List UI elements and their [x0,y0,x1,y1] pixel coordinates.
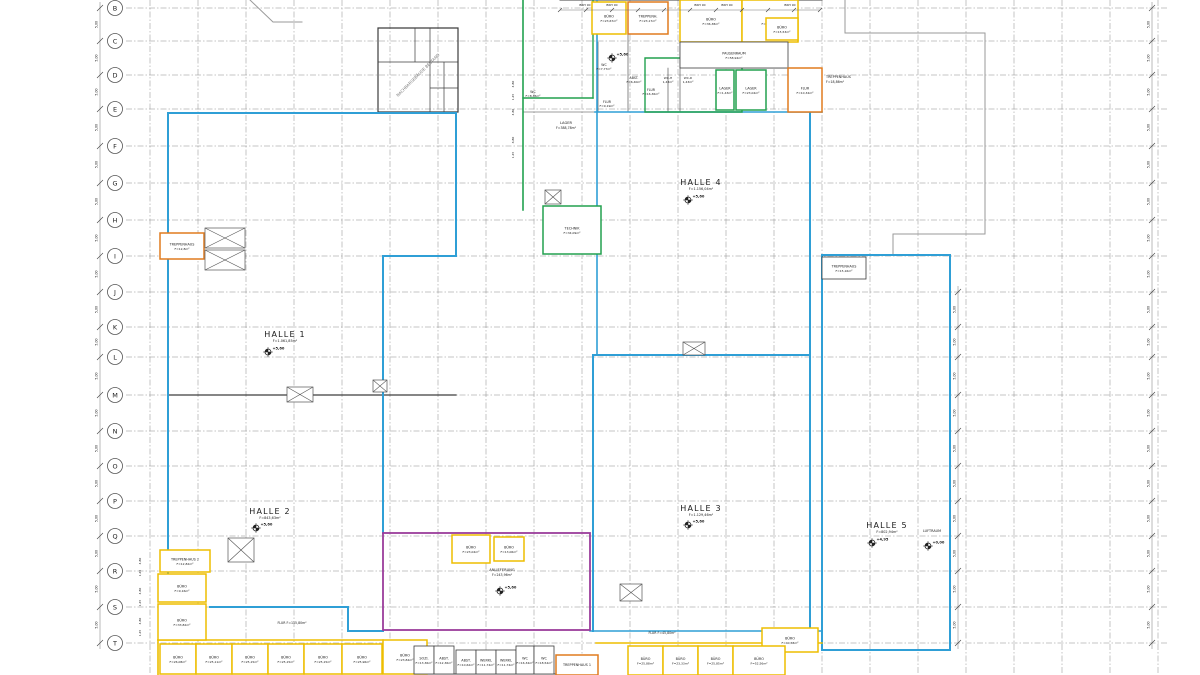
room-area: F=36,38m² [703,22,721,26]
row-letter: D [112,71,117,79]
dim-value: 5,00 [1147,585,1151,592]
dim-value: 5,00 [1147,445,1151,452]
plan-label: 1,43m² [683,80,695,84]
hall-name: HALLE 1 [264,330,306,339]
dimension-chain: 5,005,005,005,005,005,005,005,005,005,00 [953,286,962,649]
room-b-ro: BÜROF=25,15m² [268,644,304,674]
room-area: F=10,34m² [797,91,815,95]
room-area: F=40,58m² [782,641,800,645]
row-letter: F [113,142,117,150]
room-treppenhaus: TREPPENHAUSF=12,8m² [160,233,204,259]
room-area: F=23,04m² [743,91,761,95]
room-area: F=25,88m² [637,661,655,665]
plan-label: 1,45 [138,570,142,577]
grid-row-J: J [108,285,123,300]
grid-row-Q: Q [108,529,123,544]
row-letter: R [113,567,118,575]
plan-label: BRH 90 [579,3,590,7]
dim-value: 5,00 [95,54,99,61]
plan-label: F=8,35m² [525,94,541,98]
room-werkl: WERKLF=11,74m² [496,650,516,674]
row-letter: L [113,353,117,361]
elevation-quadrant [925,543,928,546]
dim-value: 5,00 [953,306,957,313]
row-letter: T [112,639,117,647]
room-wc: WCF=16,34m² [516,646,534,674]
room-b-ro: BÜROF=23,33m² [663,646,698,675]
dim-value: 5,00 [1147,372,1151,379]
plan-label: TREPPENHAUS [825,75,851,79]
plan-label: 1,45 [138,630,142,637]
stair-symbol [545,190,561,204]
room-b-ro: BÜROF=15,53m² [766,18,798,40]
room-abst-: ABST.F=10,62m² [456,650,476,674]
grid-row-O: O [108,459,123,474]
room-area: F=10,62m² [458,663,476,667]
room-area: F=12,36m² [436,661,454,665]
hall-halle-1: HALLE 1F=1.061,85m²+5,60 [263,330,306,357]
row-letter: J [113,288,116,296]
grid-row-T: T [108,636,123,651]
room-name: BÜRO [177,584,187,589]
dim-value: 5,00 [95,515,99,522]
grid-row-N: N [108,424,123,439]
grid-row-H: H [108,213,123,228]
grid-row-labels: BCDEFGHIJKLMNOPQRST [108,1,123,651]
room-b-ro: BÜROF=25,15m² [232,644,268,674]
hall-name: HALLE 2 [249,507,291,516]
dim-value: 5,00 [1147,306,1151,313]
room-name: BÜRO [754,656,764,661]
dim-value: 5,00 [95,198,99,205]
elevation-quadrant [500,591,503,594]
room-area: F=25,85m² [707,661,725,665]
hall-halle-4: HALLE 4F=1.156,04m²+5,60 [680,178,722,205]
gray-outline [845,0,985,255]
plan-label: 1,45 [138,600,142,607]
elevation-value: +5,60 [693,520,705,524]
dim-value: 5,00 [953,338,957,345]
plan-label: 4,80 [138,558,142,565]
dim-value: 5,00 [1147,338,1151,345]
row-letter: S [113,603,117,611]
elevation-marker: +5,60 [607,53,629,64]
dim-value: 5,00 [953,409,957,416]
row-letter: P [113,497,117,505]
dim-value: 5,00 [1147,88,1151,95]
grid-row-I: I [108,249,123,264]
grid-row-R: R [108,564,123,579]
dim-value: 5,00 [95,372,99,379]
room-area: F=26,08m² [170,660,188,664]
grid-row-P: P [108,494,123,509]
stair-symbol [373,380,387,392]
room-b-ro: BÜROF=23,04m² [452,535,490,563]
dim-value: 5,00 [1147,409,1151,416]
hall-area: F=802,94m² [876,530,898,534]
dim-value: 5,00 [95,21,99,28]
room-area: F=18,54m² [536,661,554,665]
dim-value: 5,00 [1147,270,1151,277]
dim-value: 5,00 [1147,198,1151,205]
dim-value: 5,00 [1147,515,1151,522]
room-area: F=23,04m² [463,550,481,554]
plan-label: 4,80 [511,109,515,116]
dim-value: 5,00 [953,621,957,628]
dim-value: 5,00 [1147,124,1151,131]
plan-label: LAGER [560,121,573,125]
plan-label: 1,45 [511,94,515,101]
hall-name: HALLE 4 [680,178,722,187]
plan-label: F=18,86m² [826,80,845,84]
cad-floorplan-screenshot: BÜROF=23,67m²TREPPENH.F=23,17m²BÜROF=36,… [0,0,1200,675]
room-area: F=12,8m² [174,247,190,251]
grid-row-B: B [108,1,123,16]
elevation-value: +0,00 [933,541,945,545]
plan-label: F=16,36m² [643,92,661,96]
room-treppenhaus-2: TREPPENHAUS 2F=12,82m² [160,550,210,572]
elevation-quadrant [497,588,500,591]
elevation-value: +5,60 [505,586,517,590]
room-area: F=25,15m² [242,660,260,664]
dim-value: 5,00 [95,621,99,628]
elevation-quadrant [612,58,615,61]
room-b-ro: BÜROF=25,96m² [342,644,382,674]
grid-row-D: D [108,68,123,83]
room-area: F=15,53m² [774,30,792,34]
dim-value: 5,00 [953,515,957,522]
room-name: BÜRO [281,655,291,660]
stair-symbol [228,538,254,562]
room-name: BÜRO [400,653,410,658]
room-abst-: ABST.F=12,36m² [434,646,454,674]
dim-value: 5,00 [953,550,957,557]
blue-outline [210,607,383,631]
elevation-quadrant [256,528,259,531]
plan-label: 6,80 [511,137,515,144]
room-name: TREPPENHAUS 1 [562,663,591,667]
dim-value: 5,00 [1147,54,1151,61]
room-name: BÜRO [357,655,367,660]
dim-value: 5,00 [1147,21,1151,28]
room-area: F=58,94m² [726,56,744,60]
room-area: F=25,15m² [315,660,333,664]
grid-row-S: S [108,600,123,615]
room-werkl: WERKLF=11,74m² [476,650,496,674]
grid-row-K: K [108,320,123,335]
elevation-marker: +5,60 [683,520,705,531]
plan-label: LUFTRAUM [923,529,941,533]
stair-symbol [683,342,705,355]
dim-value: 5,00 [1147,161,1151,168]
plan-label: 1,45 [511,152,515,159]
room-b-ro: BÜROF=25,15m² [304,644,342,674]
room-area: F=11,74m² [478,663,496,667]
dimension-chain: 5,005,005,005,005,005,005,005,005,005,00… [95,2,104,649]
room-name: BÜRO [706,17,716,22]
room-name: BÜRO [177,618,187,623]
row-letter: O [112,462,117,470]
hall-halle-5: HALLE 5F=802,94m²+4,95 [866,521,908,548]
hall-area: F=843,63m² [259,516,281,520]
grid-row-G: G [108,176,123,191]
stair-symbol [205,250,245,270]
elevation-marker: +0,00 [923,541,945,552]
elevation-value: +4,95 [877,538,889,542]
elevation-quadrant [688,200,691,203]
dim-value: 5,00 [95,338,99,345]
elevation-quadrant [685,522,688,525]
room-area: F=23,17m² [640,19,658,23]
room-area: F=15,16m² [836,269,854,273]
room-name: BÜRO [504,545,514,550]
dim-value: 5,00 [95,445,99,452]
room-technik: TECHNIKF=34,09m² [543,206,601,254]
row-letter: G [112,179,117,187]
row-letter: C [113,37,118,45]
room-b-ro: BÜROF=52,56m² [733,646,785,675]
grid-row-L: L [108,350,123,365]
room-area: F=23,84m² [397,658,415,662]
room-lager: LAGERF=23,04m² [736,70,766,110]
plan-label: BRH 90 [784,3,795,7]
row-letter: Q [112,532,117,540]
plan-label: F=9,19m² [599,104,615,108]
room-name: BÜRO [641,656,651,661]
elevation-quadrant [268,352,271,355]
grid-row-E: E [108,102,123,117]
elevation-quadrant [265,349,268,352]
room-name: BÜRO [466,545,476,550]
elevation-marker: +5,60 [251,523,273,534]
dim-value: 5,00 [95,270,99,277]
room-treppenhaus-1: TREPPENHAUS 1 [556,655,598,675]
plan-label: F=6,40m² [626,80,642,84]
dim-value: 5,00 [953,585,957,592]
dim-value: 5,00 [95,306,99,313]
dim-value: 5,00 [953,372,957,379]
room-b-ro: BÜROF=33,82m² [158,604,206,640]
dim-value: 5,00 [953,480,957,487]
elevation-quadrant [685,197,688,200]
hall-area: F=1.061,85m² [273,339,298,343]
elevation-marker: +4,95 [867,538,889,549]
plan-label: BRH 90 [694,3,705,7]
plan-label: F=243,96m² [492,573,513,577]
room-area: F=12,82m² [177,562,195,566]
hall-name: HALLE 5 [866,521,908,530]
row-letter: E [113,105,117,113]
elevation-value: +5,60 [693,195,705,199]
dim-value: 5,00 [1147,234,1151,241]
room-name: BÜRO [245,655,255,660]
hall-halle-3: HALLE 3F=1.129,46m²+5,60 [680,504,722,530]
room-b-ro: BÜROF=25,85m² [698,646,733,675]
row-letter: B [113,4,117,12]
room-treppenhaus: TREPPENHAUSF=15,16m² [822,257,866,279]
room-area: F=52,56m² [751,661,769,665]
room-area: F=25,15m² [278,660,296,664]
room-flur: FLURF=10,34m² [788,68,822,112]
dim-value: 5,00 [953,445,957,452]
room-name: BÜRO [604,14,614,19]
elevation-quadrant [872,543,875,546]
room-b-ro: BÜROF=9,16m² [158,574,206,602]
dim-value: 5,00 [95,88,99,95]
dim-value: 5,00 [95,124,99,131]
elevation-value: +5,60 [261,523,273,527]
dim-value: 5,00 [95,161,99,168]
row-letter: M [112,391,118,399]
hall-area: F=1.156,04m² [689,187,714,191]
room-name: BÜRO [209,655,219,660]
hall-halle-2: HALLE 2F=843,63m²+5,60 [249,507,291,533]
elevation-value: +5,60 [273,347,285,351]
row-letter: N [113,427,118,435]
room-b-ro: BÜROF=26,08m² [160,644,196,674]
room-wc: WCF=18,54m² [534,646,554,674]
room-name: BÜRO [173,655,183,660]
dim-value: 5,00 [95,550,99,557]
room-area: F=13,06m² [501,550,519,554]
plan-label: FLUR F=45,80m² [648,631,676,635]
blue-outline [168,113,456,533]
stair-symbol [620,584,642,601]
hall-area: F=1.129,46m² [689,513,714,517]
dim-value: 5,00 [95,480,99,487]
dim-value: 5,00 [1147,550,1151,557]
room-area: F=13,36m² [416,661,434,665]
room-area: F=11,74m² [498,663,516,667]
dim-value: 5,00 [95,234,99,241]
grid-row-F: F [108,139,123,154]
plan-label: BRH 90 [721,3,732,7]
stair-symbol [287,387,313,402]
row-letter: K [113,323,118,331]
plan-label: 4,80 [138,588,142,595]
room-b-ro: BÜROF=36,38m² [680,0,742,42]
dim-value: 5,00 [95,585,99,592]
room-area: F=33,82m² [174,623,192,627]
room-area: F=23,67m² [601,19,619,23]
room-area: F=25,96m² [354,660,372,664]
room-area: F=1,43m² [717,91,733,95]
plan-label: 1,43m² [663,80,675,84]
room-b-ro: BÜROF=25,11m² [196,644,232,674]
elevation-quadrant [609,55,612,58]
elevation-quadrant [928,546,931,549]
room-name: BÜRO [676,656,686,661]
grid-row-C: C [108,34,123,49]
room-area: F=25,11m² [206,660,224,664]
room-b-ro: BÜROF=25,88m² [628,646,663,675]
blue-outline [822,255,950,650]
room-name: BÜRO [785,636,795,641]
room-name: BÜRO [318,655,328,660]
hall-name: HALLE 3 [680,504,722,513]
room-area: F=16,34m² [517,661,535,665]
elevation-marker: +5,60 [263,347,285,358]
elevation-value: +5,60 [617,53,629,57]
elevation-quadrant [253,525,256,528]
plan-label: F=388,78m² [556,126,577,130]
room-sozi-: SOZI.F=13,36m² [414,646,434,674]
room-area: F=34,09m² [564,231,582,235]
room-name: BÜRO [777,25,787,30]
plan-label: ANLIEFERUNG [489,568,515,572]
row-letter: H [113,216,118,224]
row-letter: I [114,252,116,260]
room-lager: LAGERF=1,43m² [716,70,734,110]
plan-label: F=7,77m² [596,67,612,71]
room-area: F=23,33m² [672,661,690,665]
stair-symbol [205,228,245,248]
dimension-chain: 5,005,005,005,005,005,005,005,005,005,00… [1147,2,1156,649]
room-pausenraum: PAUSENRAUMF=58,94m² [680,42,788,68]
elevation-quadrant [688,525,691,528]
room-treppenh-: TREPPENH.F=23,17m² [628,2,668,34]
elevation-quadrant [869,540,872,543]
plan-label: FLUR F=115,80m² [277,621,307,625]
plan-label: 4,80 [511,81,515,88]
room-name: BÜRO [711,656,721,661]
plan-label: BRH 90 [606,3,617,7]
plan-label: 4,80 [138,618,142,625]
elevation-marker: +5,60 [495,586,517,597]
dim-value: 5,00 [1147,480,1151,487]
dim-value: 5,00 [95,409,99,416]
floor-plan-canvas: BÜROF=23,67m²TREPPENH.F=23,17m²BÜROF=36,… [0,0,1200,675]
room-b-ro: BÜROF=13,06m² [494,537,524,561]
elevation-marker: +5,60 [683,195,705,206]
grid-row-M: M [108,388,123,403]
dim-value: 5,00 [1147,621,1151,628]
room-area: F=9,16m² [174,589,190,593]
